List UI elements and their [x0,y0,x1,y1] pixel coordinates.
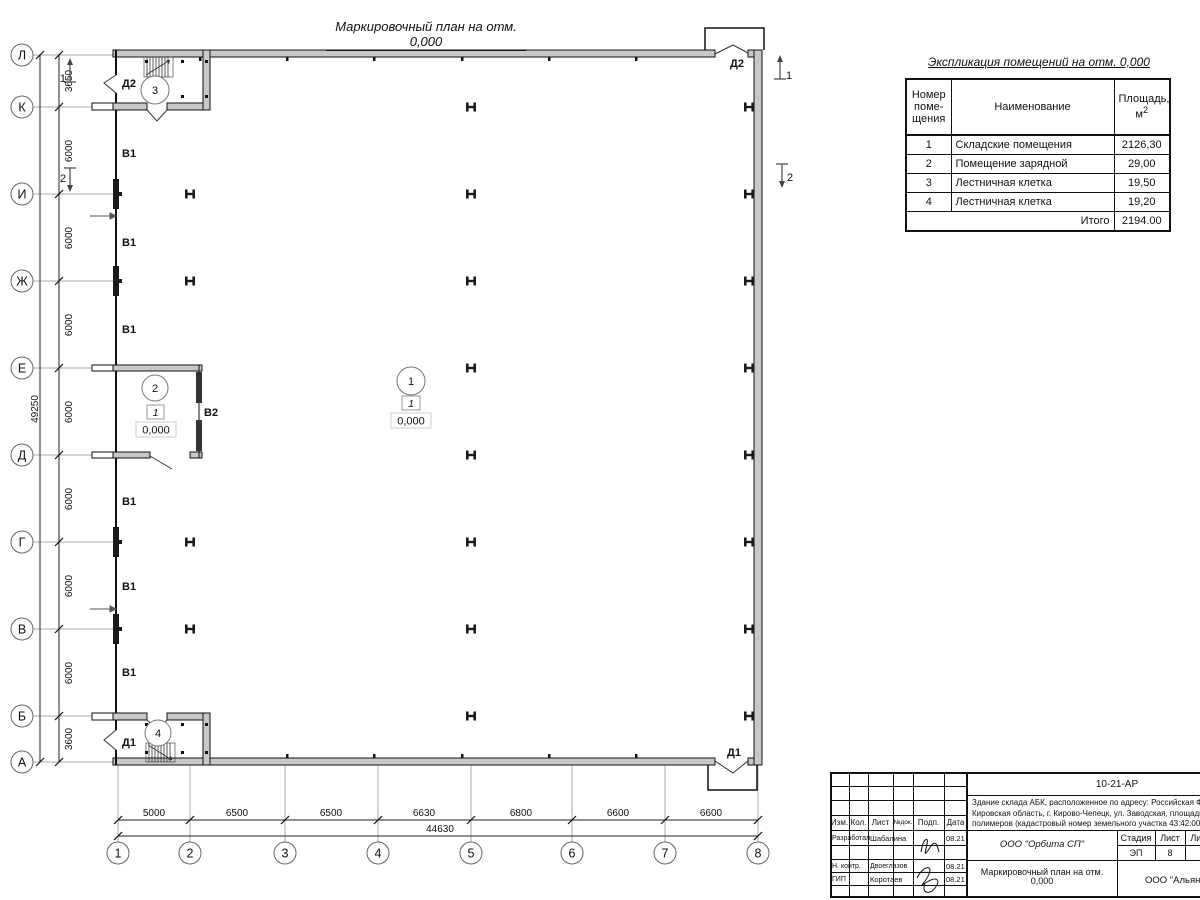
schedule-title: Экспликация помещений на отм. 0,000 [905,55,1173,69]
col-axis-label: 4 [375,847,382,861]
row-axis-label: В [18,623,26,637]
dim-v: 6000 [64,139,75,162]
tb-col-podp: Подп. [913,818,944,827]
tb-date: 08.21 [946,862,967,871]
row-axis-label: Г [19,536,26,550]
sheet-title: Маркировочный план на отм. 0,000 [967,868,1117,886]
col-axis-label: 3 [282,847,289,861]
room-num: 2 [906,155,951,174]
room-num: 1 [906,135,951,155]
col-axis-label: 5 [468,847,475,861]
door-label-d2: Д2 [730,58,744,70]
dim-h: 6500 [320,808,343,819]
room-schedule-table: Номер поме- щения Наименование Площадь, … [905,78,1171,232]
tb-col-kol: Кол. [849,818,868,827]
dim-v-total: 49250 [30,395,41,423]
dim-h: 6630 [413,808,436,819]
gate-v2-leaf [196,372,202,403]
design-company: ООО "Орбита СП" [967,840,1117,849]
total-value: 2194.00 [1114,212,1170,232]
total-label: Итого [906,212,1114,232]
tb-role: Разработал [832,834,868,843]
wall-pilasters [92,103,113,720]
dim-h: 6500 [226,808,249,819]
stage-value: ЭП [1117,849,1155,858]
floor-type-mark: 1 [153,407,159,419]
elevation-mark: 0,000 [142,425,170,437]
room-name: Складские помещения [951,135,1114,155]
row-axis-label: К [18,101,26,115]
dim-v: 6000 [64,313,75,336]
room-area: 19,50 [1114,174,1170,193]
table-row: 2 Помещение зарядной 29,00 [906,155,1170,174]
tb-name: Двоеглазов [870,862,914,871]
dim-v: 6000 [64,574,75,597]
door-label-d2: Д2 [122,78,136,90]
table-row: 3 Лестничная клетка 19,50 [906,174,1170,193]
col-axis-label: 8 [755,847,762,861]
room-schedule: Экспликация помещений на отм. 0,000 Номе… [905,55,1173,232]
dimension-lines [40,55,758,836]
tb-col-data: Дата [944,818,967,827]
room-number: 1 [408,376,414,388]
drawing-sheet: 3650 6000 6000 6000 6000 6000 6000 6000 … [0,0,1200,900]
dim-v: 6000 [64,226,75,249]
schedule-col-name: Наименование [951,79,1114,135]
room-num: 4 [906,193,951,212]
section-label: 1 [60,73,66,85]
row-axis-label: Е [18,362,26,376]
tb-date: 08.21 [946,875,967,884]
door-label-d1: Д1 [122,737,136,749]
dim-v: 6000 [64,487,75,510]
sheet-value: 8 [1155,849,1185,858]
steel-columns [185,103,754,721]
col-axis-label: 6 [569,847,576,861]
room-number: 3 [152,85,158,97]
gate-label-v1: В1 [122,667,136,679]
gate-v2-leaf [196,420,202,451]
room-number: 2 [152,383,158,395]
dim-h: 5000 [143,808,166,819]
dim-v: 6000 [64,400,75,423]
entry-arrows [90,213,116,612]
stage-label: Стадия [1117,834,1155,843]
room-name: Помещение зарядной [951,155,1114,174]
contractor-company: ООО "Альянс [1145,876,1200,885]
tb-name: Шабалина [870,834,912,843]
section-mark-labels: 1 2 1 2 [60,70,793,185]
section-label: 2 [60,173,66,185]
project-description: Здание склада АБК, расположенное по адре… [972,798,1200,830]
dim-v: 3600 [64,727,75,750]
dim-h-total: 44630 [426,824,454,835]
table-row: 4 Лестничная клетка 19,20 [906,193,1170,212]
room-number: 4 [155,728,161,740]
room-name: Лестничная клетка [951,193,1114,212]
gate-label-v1: В1 [122,496,136,508]
floor-type-mark: 1 [408,398,414,410]
col-axis-label: 7 [662,847,669,861]
sheets-label: Листов [1185,834,1200,843]
stair-icon [144,57,173,77]
schedule-col-number: Номер поме- щения [906,79,951,135]
drawing-title: Маркировочный план на отм. 0,000 [326,19,526,51]
room-area: 29,00 [1114,155,1170,174]
section-label: 2 [787,172,793,184]
opening-labels: Д2 Д2 Д1 Д1 В1 В1 В1 В1 В1 В1 В2 [122,58,744,759]
table-row: 1 Складские помещения 2126,30 [906,135,1170,155]
room-marks: 1 1 0,000 2 1 0,000 3 4 [136,76,431,746]
row-axis-label: Д [18,449,27,463]
gates-v1 [113,179,122,644]
tb-col-izm: Изм. [830,818,849,827]
sheets-value: 1 [1185,849,1200,858]
gate-label-v2: В2 [204,407,218,419]
tb-role: Н. контр. [832,862,868,871]
room-area: 2126,30 [1114,135,1170,155]
tb-col-ndok: №док. [893,818,913,827]
dim-v: 6000 [64,661,75,684]
row-axis-label: А [18,756,27,770]
row-axis-label: Б [18,710,26,724]
vestibule-top-right [705,28,764,50]
sheet-label: Лист [1155,834,1185,843]
signature [913,830,944,896]
tb-col-list: Лист [868,818,893,827]
gate-label-v1: В1 [122,237,136,249]
room-name: Лестничная клетка [951,174,1114,193]
door-swing [715,45,748,773]
grid-lines [33,55,758,842]
row-axis-label: И [18,188,27,202]
doc-number: 10-21-АР [967,780,1200,789]
room-area: 19,20 [1114,193,1170,212]
elevation-mark: 0,000 [397,416,425,428]
door-leaf [150,456,172,469]
gate-label-v1: В1 [122,148,136,160]
schedule-col-area: Площадь, м2 [1114,79,1170,135]
col-axis-label: 2 [187,847,194,861]
dimension-ticks [36,51,762,840]
row-axis-label: Ж [16,275,28,289]
tb-role: ГИП [832,875,868,884]
gate-label-v1: В1 [122,324,136,336]
tb-name: Коротаев [870,875,914,884]
dim-h: 6800 [510,808,533,819]
gate-label-v1: В1 [122,581,136,593]
section-label: 1 [786,70,792,82]
tb-date: 08.21 [946,834,967,843]
door-label-d1: Д1 [727,747,741,759]
row-axis-label: Л [18,49,26,63]
table-total-row: Итого 2194.00 [906,212,1170,232]
section-marks [64,55,788,192]
dim-h: 6600 [607,808,630,819]
col-axis-label: 1 [115,847,122,861]
room-num: 3 [906,174,951,193]
vestibule-bottom-right [708,765,757,790]
dim-h: 6600 [700,808,723,819]
